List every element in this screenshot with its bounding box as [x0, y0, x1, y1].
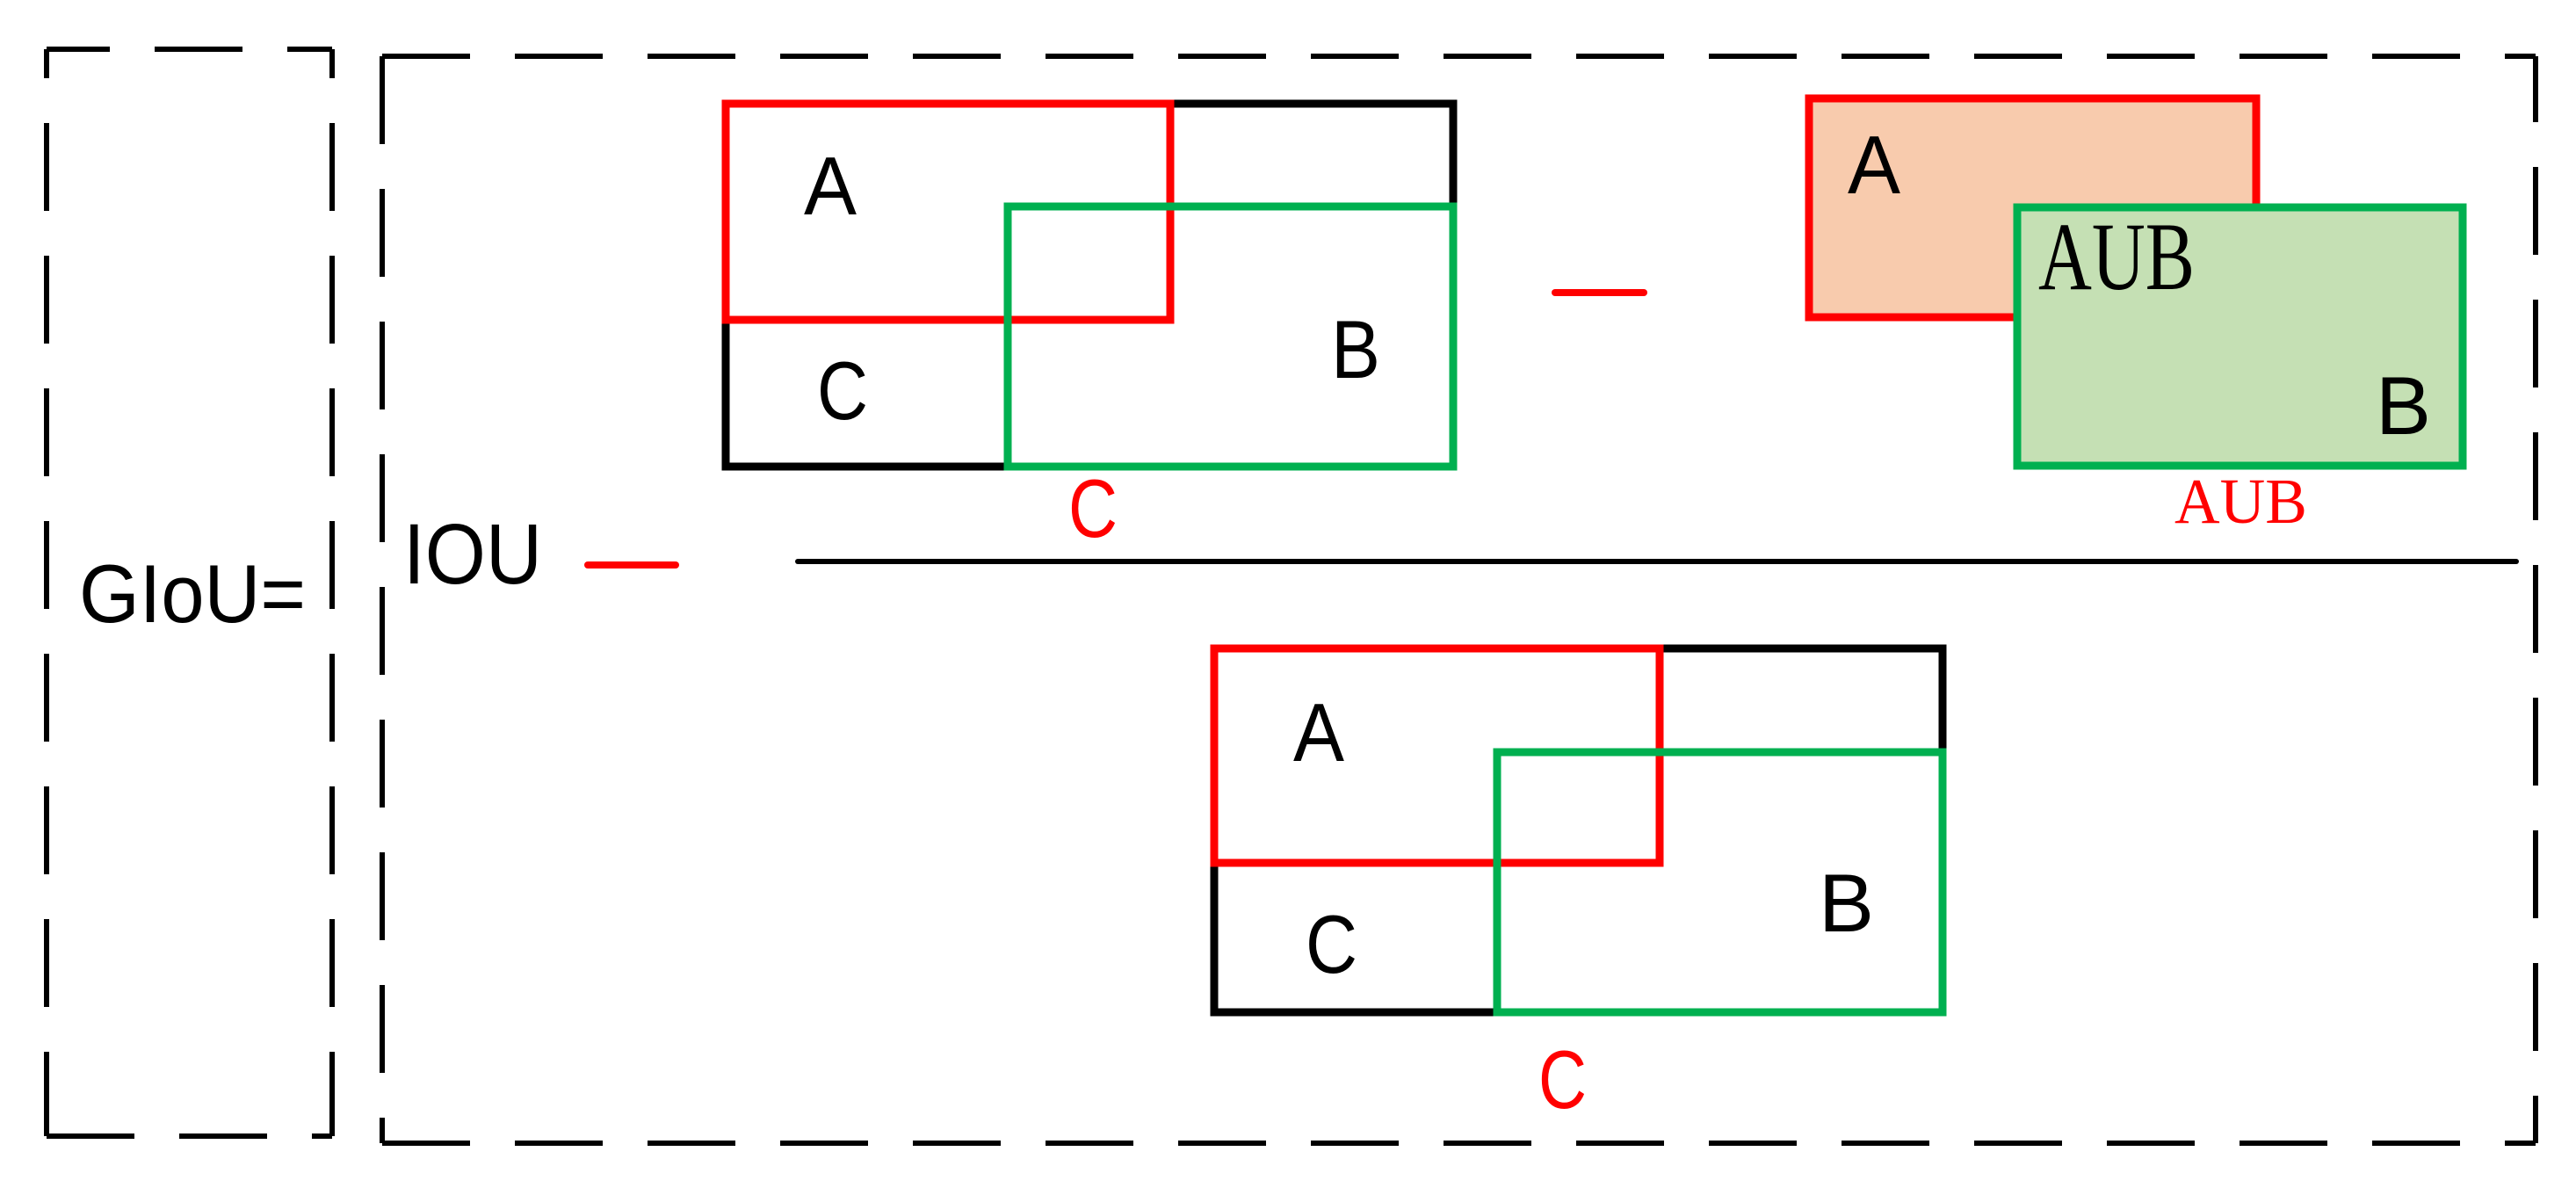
svg-text:B: B [2376, 359, 2431, 452]
svg-text:B: B [1819, 857, 1874, 949]
svg-text:A: A [1848, 119, 1900, 211]
svg-text:AUB: AUB [2038, 203, 2195, 310]
svg-text:AUB: AUB [2174, 466, 2307, 537]
svg-text:GIoU=: GIoU= [79, 547, 306, 640]
svg-text:A: A [804, 140, 857, 232]
svg-text:A: A [1293, 686, 1344, 779]
svg-text:C: C [1538, 1033, 1587, 1126]
svg-text:IOU: IOU [403, 506, 542, 602]
svg-text:C: C [1068, 462, 1118, 554]
svg-text:C: C [1306, 898, 1357, 990]
svg-text:C: C [817, 344, 868, 437]
svg-text:B: B [1331, 303, 1380, 395]
